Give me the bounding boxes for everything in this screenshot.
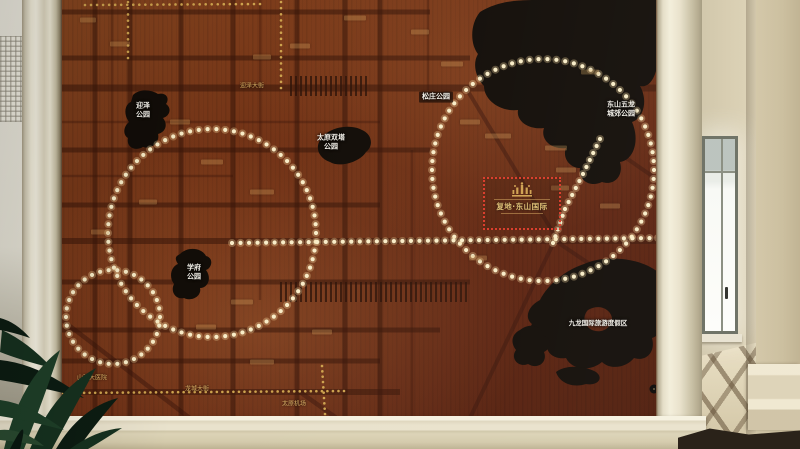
railway-hatch <box>280 282 470 302</box>
project-marker: 复地·东山国际 <box>483 177 561 230</box>
marker-tagline-rule <box>494 199 550 200</box>
window <box>702 136 738 334</box>
window-handle <box>725 287 728 299</box>
project-name-label: 复地·东山国际 <box>496 201 547 212</box>
lattice-vent-panel <box>0 36 22 122</box>
frame-right-molding <box>656 0 702 435</box>
wall-right <box>700 0 800 449</box>
window-mullion <box>721 139 723 331</box>
column-base-molding <box>748 364 800 430</box>
potted-plant <box>0 300 140 449</box>
marker-subline-rule <box>501 213 543 214</box>
window-sill <box>700 334 742 342</box>
window-mullion <box>705 171 735 173</box>
lobby-scene: 迎泽 公园太原双塔 公园松庄公园东山五龙 城郊公园学府 公园九龙国际旅游度假区迎… <box>0 0 800 449</box>
railway-hatch <box>287 76 367 96</box>
crown-logo-icon <box>510 182 534 198</box>
